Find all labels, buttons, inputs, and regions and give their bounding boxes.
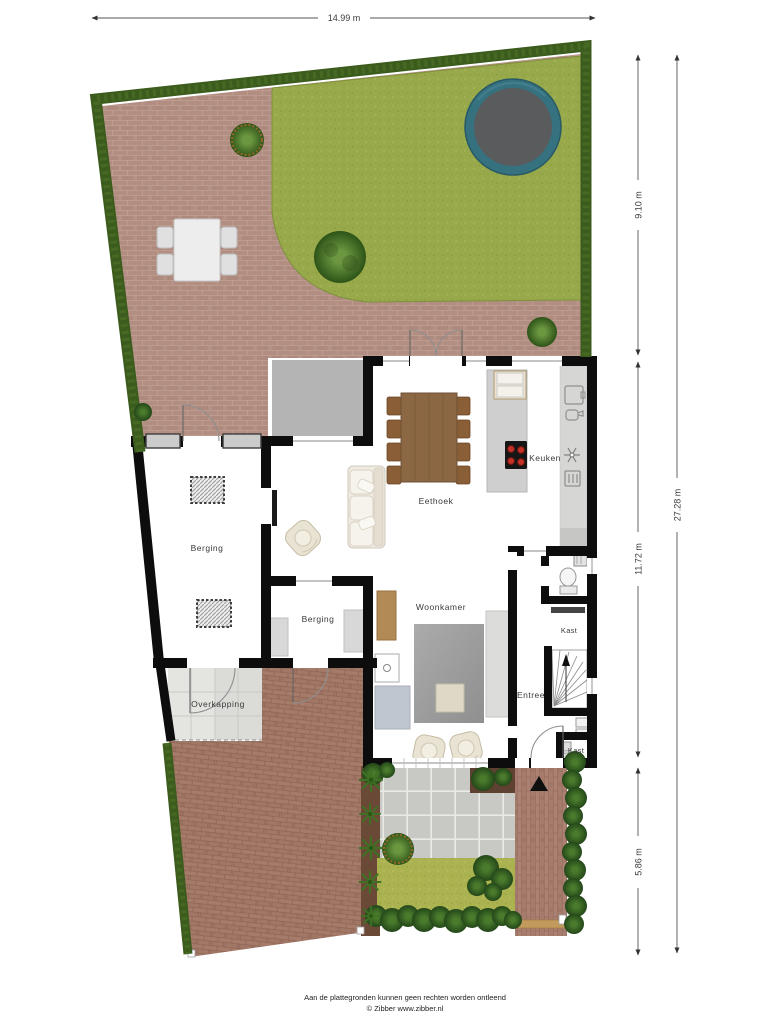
side-table [375,686,410,729]
floorplan-drawing: 14.99 m 9.10 m 11.72 m 5.86 m 27.28 m Be… [0,0,768,1024]
front-hedge-row [365,905,522,933]
sofa [348,466,385,548]
roof-overhang [272,360,363,437]
corner-bush [527,317,557,347]
trampoline [465,79,561,175]
dim-right-3-label: 5.86 m [634,848,644,876]
room-label-kast-lower: Kast [568,746,585,755]
footer-line1: Aan de plattegronden kunnen geen rechten… [304,993,506,1004]
threshold-plank [516,920,566,928]
room-label-berging-small: Berging [302,614,335,624]
kitchen-island [487,370,527,492]
footer-disclaimer: Aan de plattegronden kunnen geen rechten… [304,993,506,1015]
footer-line2: © Zibber www.zibber.nl [304,1004,506,1015]
tv-cabinet [377,591,396,640]
room-label-berging-large: Berging [191,543,224,553]
coffee-table [436,684,464,712]
room-label-overkapping: Overkapping [191,699,245,709]
floorplan-page: 14.99 m 9.10 m 11.72 m 5.86 m 27.28 m Be… [0,0,768,1024]
front-tree [382,833,414,865]
kitchen-counter [560,366,587,546]
room-label-eethoek: Eethoek [419,496,454,506]
wall-plant [134,403,152,421]
stove-box [375,654,399,682]
toilet-wc [560,568,577,594]
radiator [551,607,585,613]
patio-tree [230,123,264,157]
room-label-kast-upper: Kast [561,626,578,635]
room-label-keuken: Keuken [529,453,561,463]
room-label-woonkamer: Woonkamer [416,602,466,612]
skylight-hatch-2 [197,600,231,627]
dim-right-total-label: 27.28 m [673,489,683,522]
room-label-entree: Entree [517,690,545,700]
dim-width-label: 14.99 m [328,13,361,23]
staircase [552,650,587,708]
dim-right-2-label: 11.72 m [634,543,644,575]
lawn-bush [314,231,366,283]
sideboard [486,611,510,717]
dim-right-1-label: 9.10 m [634,191,644,219]
skylight-hatch-1 [191,477,224,503]
